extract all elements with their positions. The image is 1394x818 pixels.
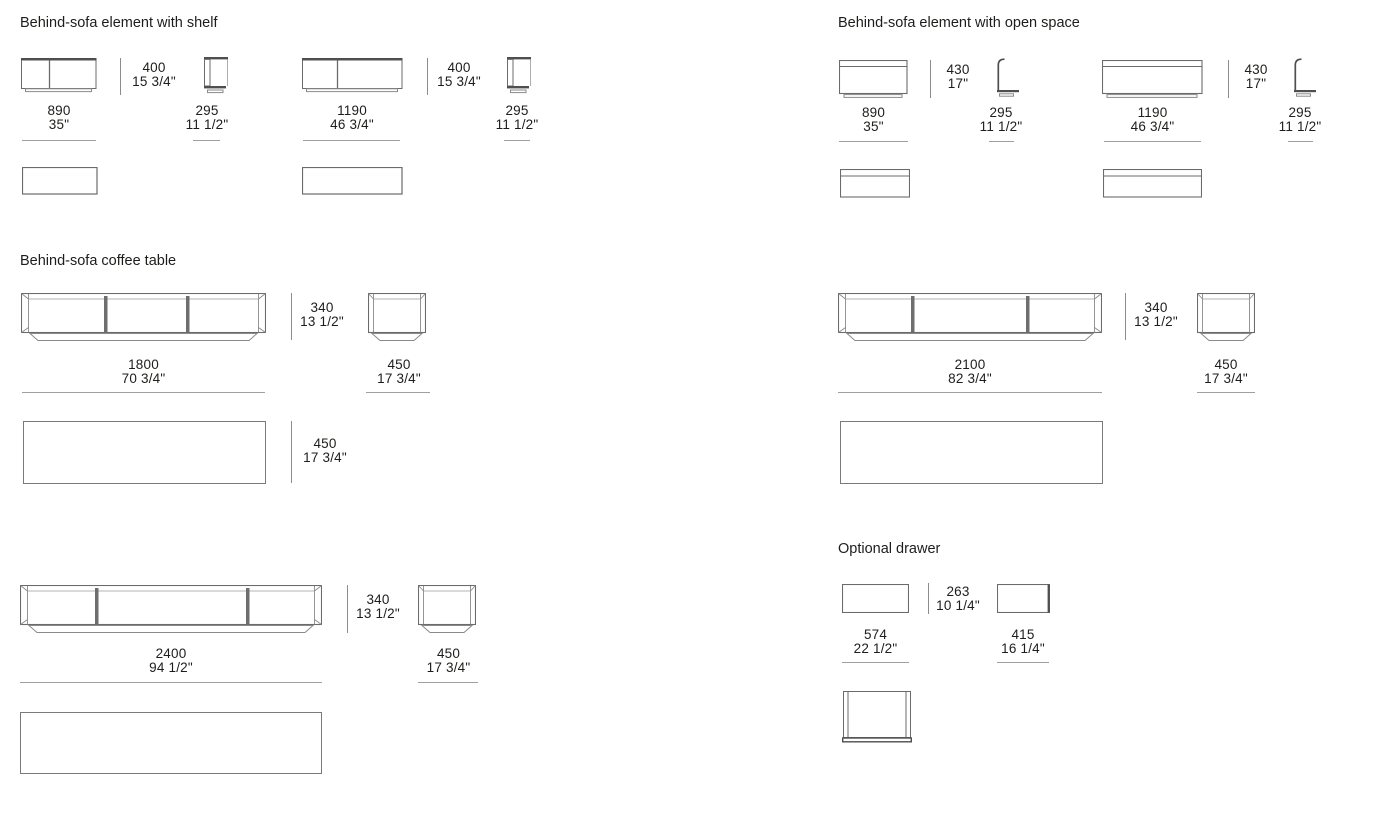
- dim-mm: 400: [125, 61, 183, 75]
- dimension-underline: [839, 141, 908, 142]
- dimension-line: [120, 58, 121, 95]
- dimension-line: [1228, 60, 1229, 98]
- dim-in: 46 3/4": [302, 118, 402, 132]
- dim-in: 94 1/2": [20, 661, 322, 675]
- height-dim-label: 263 10 1/4": [931, 585, 985, 613]
- shelf-1190-top-drawing: [302, 167, 403, 195]
- dim-in: 17 3/4": [1196, 372, 1256, 386]
- coffee-2100-side-drawing: [1197, 293, 1255, 342]
- depth-dim-label: 295 11 1/2": [488, 104, 546, 132]
- dim-mm: 2100: [838, 358, 1102, 372]
- dim-in: 17 3/4": [418, 661, 479, 675]
- section-title-coffee-table: Behind-sofa coffee table: [20, 252, 176, 270]
- open-1190-side-drawing: [1287, 58, 1318, 99]
- dim-in: 22 1/2": [842, 642, 909, 656]
- open-890-front-drawing: [839, 60, 908, 99]
- dim-in: 15 3/4": [430, 75, 488, 89]
- width-dim-label: 890 35": [839, 106, 908, 134]
- height-dim-label: 430 17": [1231, 63, 1281, 91]
- depth-dim-label: 295 11 1/2": [972, 106, 1030, 134]
- drawer-side-drawing: [997, 584, 1050, 613]
- dim-in: 10 1/4": [931, 599, 985, 613]
- open-890-top-drawing: [840, 169, 910, 198]
- dim-in: 17 3/4": [296, 451, 354, 465]
- dimension-underline: [303, 140, 400, 141]
- dim-mm: 574: [842, 628, 909, 642]
- dim-in: 11 1/2": [178, 118, 236, 132]
- open-1190-top-drawing: [1103, 169, 1202, 198]
- dimension-underline: [1288, 141, 1313, 142]
- height-dim-label: 340 13 1/2": [350, 593, 406, 621]
- height-dim-label: 340 13 1/2": [294, 301, 350, 329]
- width-dim-label: 1800 70 3/4": [22, 358, 265, 386]
- dim-mm: 295: [488, 104, 546, 118]
- dim-mm: 400: [430, 61, 488, 75]
- dim-in: 15 3/4": [125, 75, 183, 89]
- dim-in: 13 1/2": [350, 607, 406, 621]
- shelf-890-side-drawing: [204, 57, 229, 96]
- dim-mm: 295: [972, 106, 1030, 120]
- furniture-spec-sheet: Behind-sofa element with shelf 400 15 3/…: [0, 0, 1394, 818]
- dimension-underline: [504, 140, 530, 141]
- drawer-top-drawing: [842, 691, 912, 745]
- dimension-line: [928, 583, 929, 614]
- shelf-890-top-drawing: [22, 167, 98, 195]
- width-dim-label: 1190 46 3/4": [302, 104, 402, 132]
- open-1190-front-drawing: [1102, 60, 1203, 99]
- dim-mm: 430: [1231, 63, 1281, 77]
- coffee-1800-top-drawing: [23, 421, 266, 484]
- dim-in: 11 1/2": [1271, 120, 1329, 134]
- dimension-underline: [418, 682, 478, 683]
- depth-dim-label: 450 17 3/4": [368, 358, 430, 386]
- dim-mm: 415: [993, 628, 1053, 642]
- dim-in: 17": [1231, 77, 1281, 91]
- dim-mm: 340: [294, 301, 350, 315]
- shelf-1190-front-drawing: [302, 58, 403, 95]
- dim-in: 17 3/4": [368, 372, 430, 386]
- drawer-front-drawing: [842, 584, 909, 613]
- dimension-underline: [1104, 141, 1201, 142]
- coffee-2400-side-drawing: [418, 585, 476, 634]
- dimension-line: [347, 585, 348, 633]
- depth-dim-label: 450 17 3/4": [1196, 358, 1256, 386]
- shelf-1190-side-drawing: [507, 57, 532, 96]
- dimension-underline: [989, 141, 1014, 142]
- dim-mm: 340: [350, 593, 406, 607]
- dimension-underline: [193, 140, 220, 141]
- height-dim-label: 430 17": [933, 63, 983, 91]
- dim-mm: 430: [933, 63, 983, 77]
- dim-in: 13 1/2": [1128, 315, 1184, 329]
- coffee-1800-front-drawing: [21, 293, 266, 342]
- dim-mm: 1190: [1102, 106, 1203, 120]
- dimension-underline: [366, 392, 430, 393]
- dim-in: 82 3/4": [838, 372, 1102, 386]
- dimension-underline: [842, 662, 909, 663]
- width-dim-label: 2100 82 3/4": [838, 358, 1102, 386]
- section-title-shelf: Behind-sofa element with shelf: [20, 14, 217, 32]
- dim-mm: 890: [21, 104, 97, 118]
- dim-in: 13 1/2": [294, 315, 350, 329]
- coffee-2100-front-drawing: [838, 293, 1102, 342]
- dim-in: 17": [933, 77, 983, 91]
- dimension-underline: [22, 140, 96, 141]
- width-dim-label: 574 22 1/2": [842, 628, 909, 656]
- dim-mm: 2400: [20, 647, 322, 661]
- dimension-line: [291, 421, 292, 483]
- coffee-2400-front-drawing: [20, 585, 322, 634]
- top-depth-dim-label: 450 17 3/4": [296, 437, 354, 465]
- dim-in: 35": [21, 118, 97, 132]
- dim-in: 46 3/4": [1102, 120, 1203, 134]
- dim-in: 11 1/2": [488, 118, 546, 132]
- dim-mm: 263: [931, 585, 985, 599]
- height-dim-label: 340 13 1/2": [1128, 301, 1184, 329]
- dim-mm: 890: [839, 106, 908, 120]
- depth-dim-label: 295 11 1/2": [1271, 106, 1329, 134]
- open-890-side-drawing: [990, 58, 1021, 99]
- coffee-2400-top-drawing: [20, 712, 322, 774]
- dimension-underline: [838, 392, 1102, 393]
- dim-in: 35": [839, 120, 908, 134]
- coffee-2100-top-drawing: [840, 421, 1103, 484]
- dim-in: 16 1/4": [993, 642, 1053, 656]
- depth-dim-label: 415 16 1/4": [993, 628, 1053, 656]
- dimension-underline: [997, 662, 1049, 663]
- dimension-underline: [1197, 392, 1255, 393]
- dimension-line: [1125, 293, 1126, 340]
- dim-mm: 450: [296, 437, 354, 451]
- height-dim-label: 400 15 3/4": [125, 61, 183, 89]
- width-dim-label: 1190 46 3/4": [1102, 106, 1203, 134]
- dimension-line: [930, 60, 931, 98]
- dim-mm: 450: [368, 358, 430, 372]
- width-dim-label: 2400 94 1/2": [20, 647, 322, 675]
- dim-mm: 340: [1128, 301, 1184, 315]
- dim-in: 70 3/4": [22, 372, 265, 386]
- section-title-open-space: Behind-sofa element with open space: [838, 14, 1080, 32]
- width-dim-label: 890 35": [21, 104, 97, 132]
- dim-mm: 450: [418, 647, 479, 661]
- dimension-underline: [20, 682, 322, 683]
- dim-mm: 1190: [302, 104, 402, 118]
- depth-dim-label: 295 11 1/2": [178, 104, 236, 132]
- depth-dim-label: 450 17 3/4": [418, 647, 479, 675]
- dimension-line: [427, 58, 428, 95]
- dimension-line: [291, 293, 292, 340]
- dimension-underline: [22, 392, 265, 393]
- dim-in: 11 1/2": [972, 120, 1030, 134]
- section-title-drawer: Optional drawer: [838, 540, 940, 558]
- shelf-890-front-drawing: [21, 58, 97, 95]
- dim-mm: 450: [1196, 358, 1256, 372]
- dim-mm: 295: [178, 104, 236, 118]
- dim-mm: 295: [1271, 106, 1329, 120]
- height-dim-label: 400 15 3/4": [430, 61, 488, 89]
- coffee-1800-side-drawing: [368, 293, 426, 342]
- dim-mm: 1800: [22, 358, 265, 372]
